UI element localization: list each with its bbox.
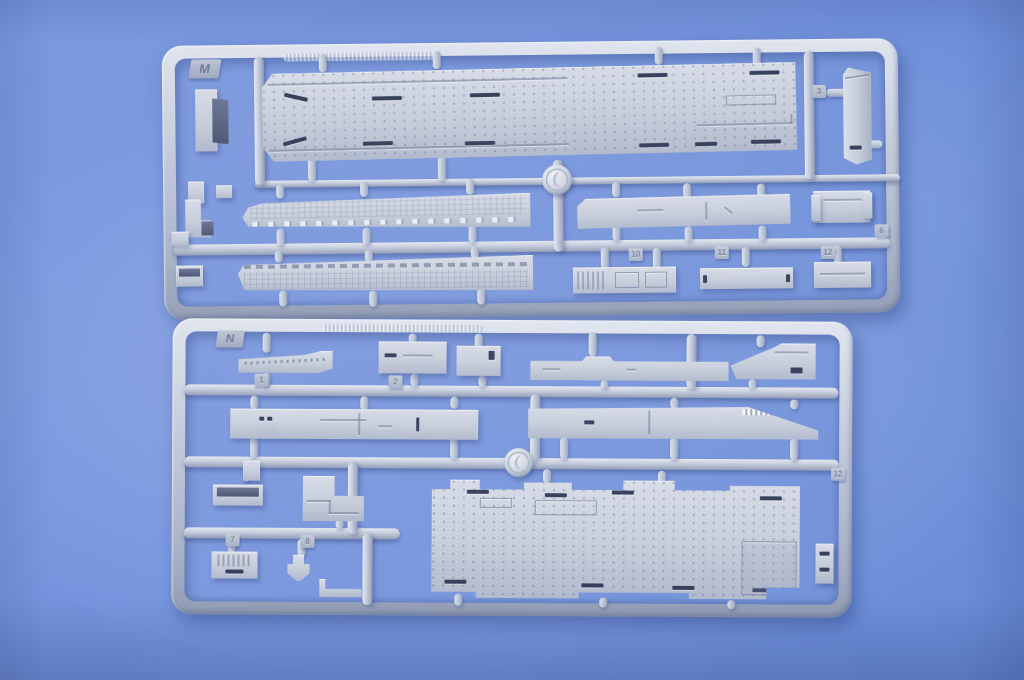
runner [804,51,815,179]
part-small-fitting [216,185,232,198]
sprue-gate [727,600,735,609]
strip-panel-line [637,209,663,212]
sprue-gate [589,332,597,356]
sprue-gate [363,228,371,245]
bracket-ribs [217,554,251,566]
tab-number: 1 [259,376,264,385]
deck-slot [372,96,402,101]
sprue-n-letter-tab: N [215,330,244,347]
tab-number: 7 [230,536,235,545]
tab-number: 12 [833,470,842,479]
plate-line [403,354,433,356]
part-superstructure-strip-left [230,409,478,440]
tab-number: 12 [823,248,832,257]
sprue-gate [277,229,285,246]
deck-slot [672,586,694,590]
deck-slot [749,70,779,75]
part-number-tab: 8 [301,535,315,548]
part-deck-strip [577,194,791,229]
strip-detail [724,206,733,214]
deck-slot [470,93,500,98]
sprue-gate [360,182,368,197]
deck-slot [581,583,603,587]
medallion-swirl-icon [542,165,572,195]
tab-number: 8 [305,537,310,546]
sprue-gate [790,399,798,409]
tray-opening [179,268,200,276]
vent-panel [645,272,667,288]
sprue-gate [748,379,756,388]
hull-portholes [253,217,525,227]
walkway-stanchions [245,358,329,365]
box-groove [820,273,865,275]
deck-slot [545,493,567,497]
sprue-gate [369,291,377,307]
strip-line [378,425,392,427]
part-number-tab: 7 [226,534,240,547]
sprue-n-embossed-code [323,324,483,333]
part-flight-deck-section [261,62,797,162]
sprue-gate [263,333,271,353]
sprue-gate [670,438,678,460]
strip-step [358,413,360,435]
sprue-gate [670,398,678,409]
strip-slot [416,417,419,431]
bracket-flange [811,195,820,221]
deck-recess [726,94,776,105]
part-ribbed-bracket [211,551,257,578]
platform-groove [329,512,359,514]
sprue-gate [560,437,568,459]
sprue-gate [250,437,258,458]
part-number-tab: 12 [831,468,845,481]
sprue-gate [599,597,607,607]
part-number-tab: 10 [629,248,643,261]
deck-slot [760,496,782,500]
strip-panel-line [705,202,707,220]
sprue-gate [450,438,458,459]
part-small-bracket-face [201,221,213,235]
sprue-gate [790,438,798,460]
sprue-gate [466,179,474,195]
part-mount-bracket [813,190,870,223]
plate-slot [489,351,495,360]
wedge-notch [790,367,802,373]
deck-slot [363,141,393,146]
strip-line [543,368,561,370]
sprue-gate [433,51,441,69]
sprue-gate [365,250,373,262]
deck-slot [612,491,634,495]
deckhouse-window [267,417,272,421]
brand-medallion [504,448,533,477]
medallion-swirl-icon [504,448,533,477]
deck-slot [467,490,489,494]
sprue-n-letter: N [225,332,236,346]
strip-line [627,369,637,371]
part-number-tab: 3 [812,85,826,98]
hull-plating [244,269,528,290]
bracket-flange [863,192,872,218]
block-chamfer [845,74,869,80]
part-small-block [815,544,833,584]
deck-trench [790,114,792,124]
sprue-m: M [162,38,901,320]
sprue-gate [468,225,476,243]
part-number-tab: 2 [388,375,402,388]
part-grooved-box [814,261,871,288]
sprue-m-letter: M [198,61,211,76]
block-slot [820,552,830,556]
wedge-line [775,351,809,353]
sprue-gate [360,396,368,410]
sprue-gate [655,47,663,65]
sprue-gate [683,183,691,198]
sprue-gate [757,335,765,347]
sprue-gate [276,185,284,199]
vent-panel [615,272,639,288]
deckhouse-window [259,417,264,421]
deck-slot [695,142,717,146]
part-open-tray [176,265,203,286]
part-slotted-strip [700,267,793,289]
tab-number: 3 [817,87,822,96]
sprue-gate [279,291,287,307]
strip-step [648,411,650,435]
part-number-tab: 1 [254,374,268,387]
strip-mark [584,420,594,424]
sprue-gate [612,182,620,197]
part-open-tray [213,484,263,505]
deck-slot [465,141,495,146]
sprue-m-embossed-code [284,52,434,62]
tab-number: 11 [717,248,726,257]
deck-recess [480,498,512,508]
sprue-gate [601,247,609,269]
plate-slot [385,353,397,357]
sprue-gate [600,380,608,388]
part-end-block [843,67,872,164]
strip-end-slot [786,274,790,282]
deck-slot [444,580,466,584]
runner [362,533,372,605]
sprue-gate [275,251,283,263]
part-hangar-deck-panel [431,480,800,600]
part-number-tab: 12 [821,246,835,259]
deck-slot [751,139,781,144]
sprue-gate [471,247,479,259]
sprue-gate [685,226,693,241]
part-small-plate [456,346,500,376]
deck-recess [535,500,597,515]
tab-number: 2 [393,377,398,386]
platform-groove [307,500,331,502]
block-slot [850,146,862,150]
bracket-groove [823,199,861,201]
sprue-gate [759,226,767,241]
vent-ribs [577,271,607,289]
sprue-n: N [171,318,853,618]
part-small-bracket [243,461,260,481]
sprue-gate [450,397,458,409]
tray-opening [217,487,259,496]
sprue-gate [478,376,486,387]
deck-slot [639,143,669,148]
part-number-tab: 11 [715,246,729,259]
part-small-box [172,232,189,246]
strip-end-slot [703,275,707,283]
block-slot [819,568,829,572]
part-deck-plate [378,341,446,373]
deck-elevator-recess [741,541,796,595]
sprue-gate [454,594,462,606]
sprue-gate [250,396,258,410]
part-angle-bracket-face [212,98,228,144]
sprue-gate [319,54,327,72]
brand-medallion [542,165,572,195]
deck-slot [637,73,667,78]
sprue-gate [410,373,418,386]
part-number-tab: 6 [874,224,888,237]
sprue-gate [438,156,446,181]
part-vent-box [573,266,676,293]
strip-deckhouse [256,411,278,435]
sprue-m-letter-tab: M [188,59,221,78]
sprue-gate [742,247,750,267]
tab-number: 10 [631,250,640,259]
deck-tiedown-dots [261,62,797,162]
sprue-gate [543,469,551,483]
sprue-gate [477,288,485,304]
bracket-slot [225,570,243,574]
tab-number: 6 [879,226,884,235]
sprue-gate [653,248,661,269]
